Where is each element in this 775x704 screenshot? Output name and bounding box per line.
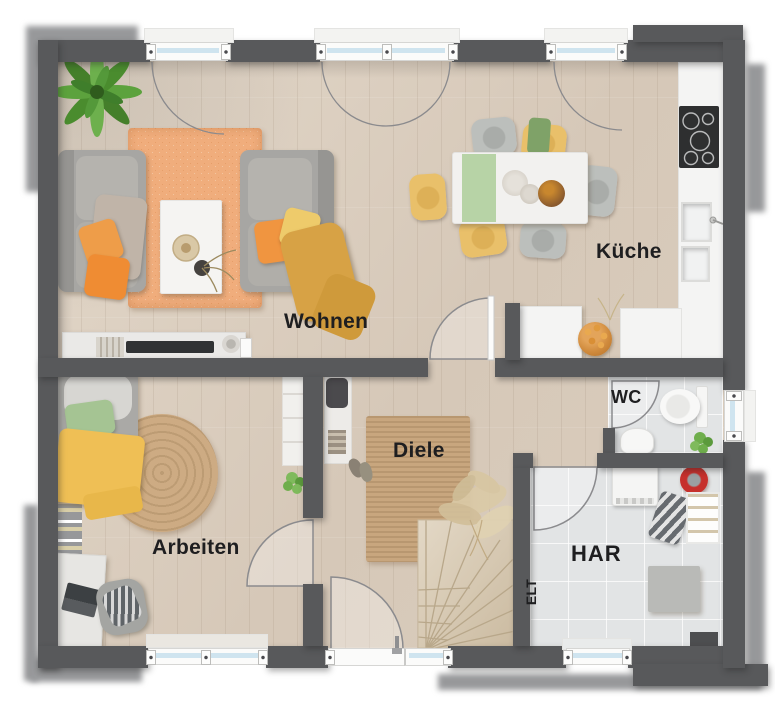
room-label-har: HAR: [571, 541, 622, 567]
entry-door-cap-right: [443, 650, 453, 665]
entry-door-handle-base: [392, 648, 402, 654]
har-window-glass: [572, 653, 622, 658]
har-door-arc: [534, 467, 597, 530]
coffee-table-decor: [173, 235, 236, 292]
room-label-elt: ELT: [523, 579, 539, 605]
wall-living-south-east: [495, 358, 723, 377]
wall-office-east-upper: [303, 377, 323, 518]
window-c-cap-right: [617, 44, 627, 60]
entry-sidelight-glass: [409, 653, 443, 658]
office-window-cap-right: [258, 650, 268, 665]
wc-window-cap-top: [726, 391, 742, 401]
office-door-arc: [247, 520, 313, 586]
window-a-cap-left: [146, 44, 156, 60]
wc-window-sill: [744, 390, 756, 442]
wall-top-3: [452, 40, 550, 62]
room-label-arbeiten: Arbeiten: [152, 536, 240, 560]
living-hall-door-leaf: [488, 296, 494, 360]
wall-left: [38, 40, 58, 668]
wall-har-west: [513, 468, 530, 646]
staircase: [418, 516, 522, 650]
window-sill-b: [314, 28, 460, 43]
window-arcs: [152, 62, 622, 134]
wall-living-south-west: [38, 358, 428, 377]
wall-kitchen-spur: [505, 303, 520, 360]
wall-top-4: [622, 40, 723, 62]
window-sill-c: [544, 28, 628, 43]
wc-window-glass: [730, 397, 735, 433]
window-b-cap-right: [448, 44, 458, 60]
room-label-wohnen: Wohnen: [284, 310, 368, 334]
office-plant: [283, 472, 305, 494]
wall-right-lower: [723, 440, 745, 668]
window-a-cap-right: [221, 44, 231, 60]
window-sill-a: [144, 28, 234, 43]
wc-window-cap-bottom: [726, 431, 742, 441]
wall-wc-west-lower: [603, 428, 615, 455]
har-window-cap-left: [563, 650, 573, 665]
floorplan-canvas: Wohnen Küche WC Diele Arbeiten HAR ELT: [0, 0, 775, 704]
wall-bottom-3: [448, 646, 566, 668]
cooktop-burners: [683, 113, 714, 165]
faucet-icon: [710, 217, 723, 224]
wc-plant: [690, 432, 713, 454]
entry-door-arc: [331, 577, 403, 649]
wall-har-north-left: [513, 453, 533, 468]
wall-bottom-right-slab: [633, 664, 768, 686]
har-window-cap-right: [622, 650, 632, 665]
room-label-wc: WC: [611, 387, 642, 408]
window-a-glass: [157, 48, 219, 53]
room-label-kueche: Küche: [596, 240, 662, 264]
window-b-cap-left: [316, 44, 326, 60]
wall-office-east-lower: [303, 584, 323, 646]
office-window-cap-left: [146, 650, 156, 665]
office-window-cap-center: [201, 650, 211, 665]
window-c-cap-left: [546, 44, 556, 60]
detail-layer: [0, 0, 775, 704]
entry-door-cap-left: [325, 650, 335, 665]
window-c-glass: [557, 48, 615, 53]
wall-har-north-right: [597, 453, 723, 468]
wall-right-upper: [723, 40, 745, 390]
window-b-cap-center: [382, 44, 392, 60]
wall-bottom-1: [38, 646, 148, 668]
wall-top-2: [226, 40, 320, 62]
wall-bottom-2: [266, 646, 328, 668]
office-window-sill: [146, 634, 268, 648]
fruit-bowl-decor: [585, 294, 624, 348]
living-hall-door-arc: [430, 298, 491, 359]
room-label-diele: Diele: [393, 439, 445, 463]
